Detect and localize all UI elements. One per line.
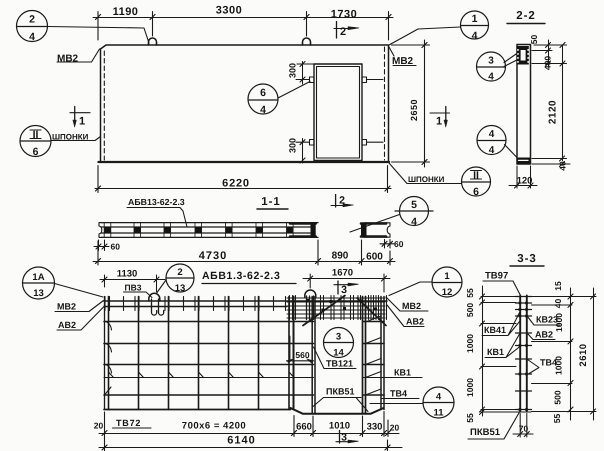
svg-text:1190: 1190 [113, 6, 139, 18]
svg-text:13: 13 [33, 288, 44, 299]
svg-text:2610: 2610 [578, 343, 589, 366]
svg-text:КВ23: КВ23 [536, 315, 558, 325]
svg-text:55: 55 [465, 288, 475, 298]
svg-text:ПВ3: ПВ3 [125, 283, 142, 293]
svg-text:2650: 2650 [409, 99, 419, 121]
svg-text:1-1: 1-1 [261, 196, 281, 208]
svg-text:2: 2 [339, 195, 345, 207]
svg-text:КВ41: КВ41 [484, 325, 506, 335]
svg-text:700х6 = 4200: 700х6 = 4200 [182, 421, 246, 432]
svg-text:АВ2: АВ2 [535, 330, 553, 340]
svg-text:II: II [473, 170, 479, 182]
svg-text:560: 560 [295, 350, 309, 360]
svg-text:МВ2: МВ2 [402, 301, 421, 311]
svg-text:60: 60 [394, 239, 404, 249]
svg-text:4: 4 [411, 216, 417, 228]
svg-text:3: 3 [341, 432, 347, 444]
svg-text:3: 3 [488, 56, 494, 67]
svg-text:II: II [33, 129, 39, 141]
svg-text:1: 1 [444, 271, 450, 282]
svg-text:ТВ4: ТВ4 [540, 358, 557, 368]
svg-text:50: 50 [529, 35, 539, 45]
svg-text:МВ2: МВ2 [392, 56, 414, 67]
svg-text:490: 490 [543, 56, 553, 70]
svg-text:ПКВ51: ПКВ51 [470, 427, 501, 438]
svg-text:1: 1 [79, 116, 85, 128]
svg-text:2-2: 2-2 [516, 10, 536, 22]
svg-text:АБВ1.3-62-2.3: АБВ1.3-62-2.3 [202, 270, 280, 282]
svg-text:300: 300 [288, 63, 298, 78]
svg-text:4: 4 [488, 72, 494, 83]
svg-text:70: 70 [519, 424, 529, 434]
svg-text:300: 300 [288, 138, 298, 153]
svg-text:330: 330 [367, 422, 383, 433]
svg-text:500: 500 [553, 390, 563, 404]
svg-text:ШПОНКИ: ШПОНКИ [408, 175, 445, 184]
svg-text:40: 40 [553, 299, 563, 309]
svg-text:40: 40 [558, 161, 568, 171]
svg-text:3300: 3300 [216, 5, 242, 17]
svg-text:4: 4 [29, 31, 35, 43]
svg-text:4730: 4730 [199, 250, 227, 262]
svg-text:1А: 1А [32, 272, 44, 283]
svg-text:5: 5 [411, 199, 417, 211]
svg-text:14: 14 [333, 348, 344, 359]
svg-text:4: 4 [489, 129, 495, 140]
svg-text:890: 890 [332, 251, 349, 262]
svg-text:КВ1: КВ1 [487, 347, 504, 357]
svg-text:МВ2: МВ2 [57, 54, 79, 65]
svg-text:1: 1 [436, 116, 442, 128]
svg-text:4: 4 [436, 392, 442, 403]
svg-text:1000: 1000 [465, 334, 475, 353]
svg-text:1: 1 [472, 13, 478, 25]
svg-text:6: 6 [260, 87, 266, 99]
svg-text:4: 4 [472, 30, 478, 42]
svg-text:12: 12 [442, 287, 453, 298]
svg-text:3: 3 [336, 332, 341, 343]
svg-text:2120: 2120 [548, 100, 559, 124]
svg-text:ШПОНКИ: ШПОНКИ [52, 133, 89, 142]
svg-text:3-3: 3-3 [517, 253, 537, 265]
svg-text:2: 2 [29, 14, 35, 26]
svg-text:55: 55 [552, 414, 562, 424]
svg-text:1000: 1000 [465, 378, 475, 397]
svg-text:55: 55 [465, 413, 475, 423]
svg-text:АВ2: АВ2 [406, 317, 424, 327]
svg-text:ТВ4: ТВ4 [390, 389, 407, 399]
svg-text:120: 120 [517, 176, 533, 187]
svg-text:2: 2 [340, 26, 346, 38]
svg-text:КВ1: КВ1 [394, 368, 411, 378]
svg-text:1130: 1130 [117, 269, 138, 280]
svg-text:20: 20 [390, 423, 400, 433]
svg-text:13: 13 [175, 283, 186, 294]
svg-text:ТВ72: ТВ72 [116, 418, 141, 428]
svg-text:3: 3 [341, 284, 347, 296]
svg-text:15: 15 [553, 281, 563, 291]
svg-text:АВ2: АВ2 [58, 320, 76, 330]
svg-text:ТВ97: ТВ97 [485, 271, 508, 282]
svg-text:6220: 6220 [222, 178, 250, 190]
svg-text:600: 600 [366, 252, 383, 263]
svg-text:1730: 1730 [331, 9, 357, 21]
svg-text:ПКВ51: ПКВ51 [326, 387, 354, 397]
svg-text:1670: 1670 [332, 268, 353, 279]
svg-text:4: 4 [260, 104, 266, 116]
svg-text:60: 60 [111, 242, 121, 252]
svg-text:2: 2 [177, 267, 182, 278]
svg-text:4: 4 [489, 145, 495, 156]
svg-text:11: 11 [433, 408, 444, 419]
svg-text:6: 6 [33, 146, 39, 158]
svg-text:6: 6 [473, 186, 479, 198]
svg-text:АБВ13-62-2.3: АБВ13-62-2.3 [128, 197, 185, 207]
svg-text:500: 500 [465, 303, 475, 317]
svg-text:6140: 6140 [227, 435, 255, 447]
svg-text:ТВ121: ТВ121 [326, 359, 353, 369]
svg-text:МВ2: МВ2 [57, 302, 76, 312]
svg-text:660: 660 [296, 422, 312, 433]
svg-text:20: 20 [94, 421, 104, 431]
